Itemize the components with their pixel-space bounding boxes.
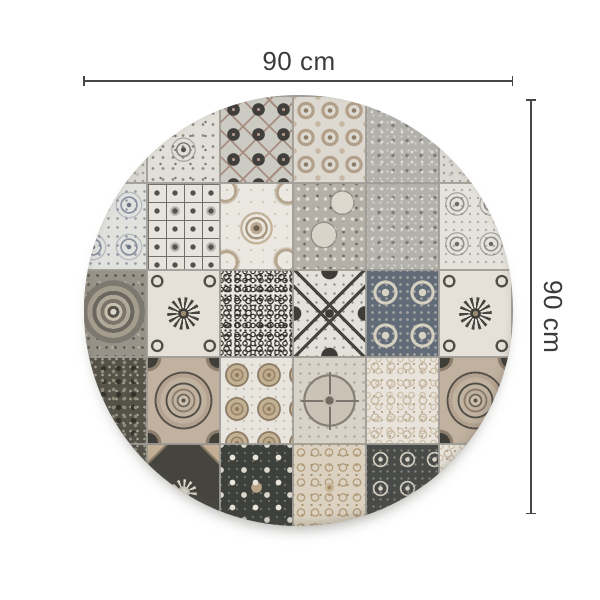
- rug-tile-r2-c3: [293, 270, 366, 357]
- rug-tile-r3-c3: [293, 357, 366, 444]
- rug-tile-r2-c5: [439, 270, 512, 357]
- rug-tile-r0-c0: [84, 96, 147, 183]
- rug-tile-r0-c4: [366, 96, 439, 183]
- rug-tile-r1-c1: [147, 183, 220, 270]
- round-patchwork-rug-image: [84, 95, 513, 526]
- rug-tile-r1-c4: [366, 183, 439, 270]
- rug-tile-r4-c4: [366, 444, 439, 526]
- rug-tile-r1-c5: [439, 183, 512, 270]
- rug-tile-r3-c1: [147, 357, 220, 444]
- rug-tile-r3-c2: [220, 357, 293, 444]
- width-dimension-label: 90 cm: [84, 46, 514, 77]
- rug-tile-r4-c2: [220, 444, 293, 526]
- rug-tile-r2-c4: [366, 270, 439, 357]
- height-dimension-label: 90 cm: [538, 109, 568, 524]
- rug-tile-r1-c0: [84, 183, 147, 270]
- rug-tile-r1-c3: [293, 183, 366, 270]
- rug-tile-r0-c2: [220, 96, 293, 183]
- product-dimension-diagram: 90 cm 90 cm: [0, 0, 600, 600]
- rug-tile-r4-c1: [147, 444, 220, 526]
- width-dimension-line: [83, 80, 513, 82]
- rug-tile-r2-c1: [147, 270, 220, 357]
- rug-tile-r4-c5: [439, 444, 512, 526]
- rug-tile-r3-c0: [84, 357, 147, 444]
- tile-grid: [84, 95, 513, 526]
- rug-tile-r0-c3: [293, 96, 366, 183]
- rug-tile-r3-c5: [439, 357, 512, 444]
- rug-tile-r2-c2: [220, 270, 293, 357]
- rug-tile-r4-c0: [84, 444, 147, 526]
- light-reflection-spot: [436, 115, 466, 145]
- rug-tile-r4-c3: [293, 444, 366, 526]
- height-dimension-line: [530, 99, 532, 514]
- rug-tile-r0-c1: [147, 96, 220, 183]
- rug-tile-r2-c0: [84, 270, 147, 357]
- rug-tile-r1-c2: [220, 183, 293, 270]
- rug-tile-r3-c4: [366, 357, 439, 444]
